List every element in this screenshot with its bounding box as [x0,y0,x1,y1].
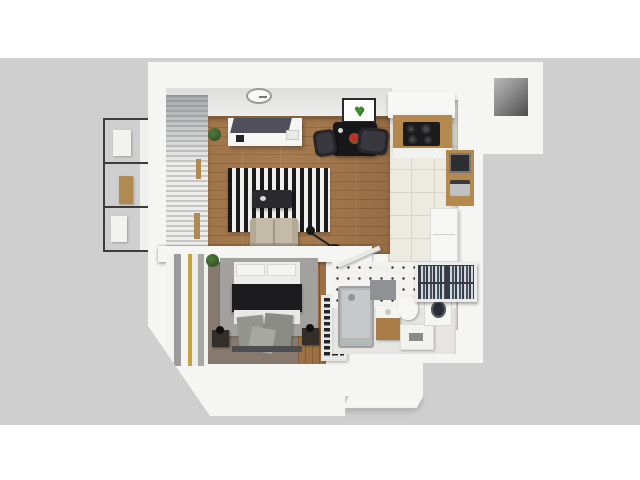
base-cabinet [393,148,452,158]
window-blinds [166,95,208,253]
white-pillow [267,264,296,276]
burner [408,135,417,144]
white-pillow [236,264,265,276]
potted-plant [206,254,219,267]
balcony-frame [103,118,151,252]
tv-sideboard [228,118,302,146]
speaker [236,135,244,142]
mirror-panel [370,280,396,300]
printer [286,130,299,140]
headboard [232,346,302,352]
vanity-sink [376,306,400,340]
clothes-shelf [419,266,445,282]
potted-plant [208,128,221,141]
built-in-oven [449,153,471,173]
bedside-lamp [306,324,314,332]
clock-hand [259,96,267,98]
tray [409,333,423,341]
bedroom-curtain-wall [166,254,208,366]
cabinet-seam [433,234,455,235]
cooktop [403,122,440,146]
balcony-rail [105,162,149,164]
clothes-shelf [419,284,445,299]
floorplan-render: ♥ [0,0,640,480]
wall-clock [246,88,272,104]
tub-basin [342,290,370,338]
cup [338,128,343,133]
coffee-machine [450,180,470,196]
dining-chair [312,129,337,158]
entry-niche [494,78,528,116]
chair-seat [316,132,335,154]
floor-lamp-head [306,226,315,235]
washer-door [431,301,446,318]
sink-basin [385,309,391,315]
coffee-table [252,190,292,208]
balcony-panel [111,216,127,242]
blinds-shade [166,95,208,165]
chair-seat [360,130,386,152]
balcony-panel [113,130,131,156]
sofa-cushion-split [273,220,275,244]
balcony-sill [140,120,149,250]
window-frame-wood [194,213,200,239]
kitchen-counter [393,115,452,150]
dining-chair [357,127,390,156]
open-wardrobe [415,262,477,302]
table-dish [260,196,266,201]
faucet [348,294,355,301]
black-blanket [232,284,302,312]
burner [407,125,415,133]
burner [424,136,432,144]
clothes-shelf [448,284,473,299]
oven-column [446,150,474,206]
clothes-shelf [448,266,473,282]
double-bed [232,262,302,350]
bathtub [338,286,374,348]
moss-heart-art: ♥ [342,98,376,123]
tall-cabinet [430,208,458,262]
heart-icon: ♥ [354,102,364,119]
bedside-lamp [216,326,224,334]
burner [421,124,431,134]
balcony-rail [105,206,149,208]
exterior-wall-stub [343,396,423,408]
tv-screen [230,118,292,133]
window-frame-wood [196,159,201,179]
low-cabinet [400,324,434,350]
balcony-wood-panel [119,176,133,204]
